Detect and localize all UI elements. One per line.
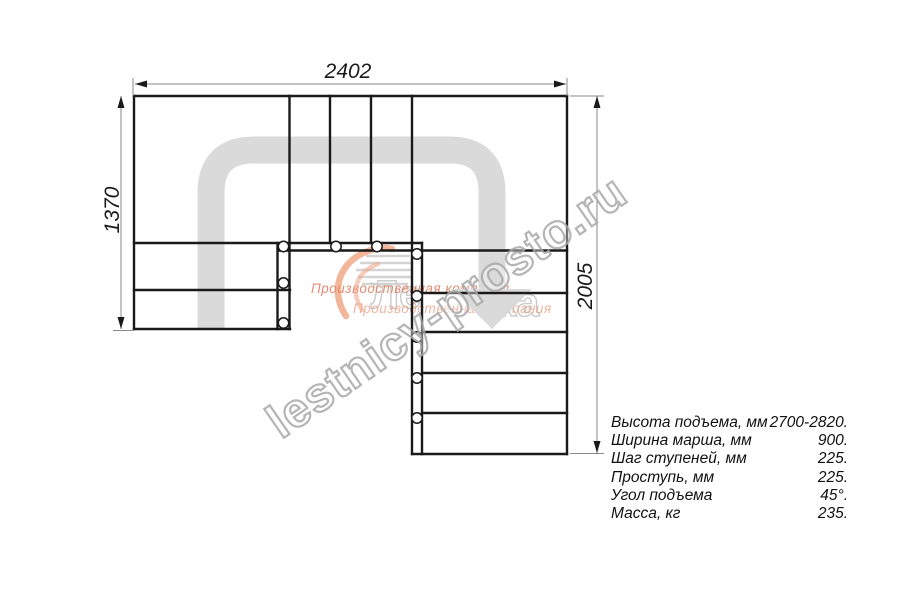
spec-label: Угол подъема	[611, 487, 712, 505]
spec-table: Высота подъема, мм 2700-2820. Ширина мар…	[611, 414, 848, 523]
spec-value: 225.	[818, 469, 848, 487]
spec-row: Масса, кг 235.	[611, 505, 848, 523]
spec-row: Проступь, мм 225.	[611, 469, 848, 487]
spec-value: 2700-2820.	[770, 414, 848, 432]
spec-label: Шаг ступеней, мм	[611, 450, 747, 468]
spec-value: 45°.	[820, 487, 848, 505]
spec-row: Шаг ступеней, мм 225.	[611, 450, 848, 468]
baluster-posts	[278, 241, 422, 423]
spec-value: 235.	[818, 505, 848, 523]
stair-drawing-page: Ле ка Производственная компания Производ…	[0, 0, 900, 600]
travel-arrow-head	[452, 289, 532, 329]
dimension-top-width-value: 2402	[324, 60, 372, 83]
spec-label: Масса, кг	[611, 505, 680, 523]
spec-value: 900.	[818, 432, 848, 450]
spec-label: Ширина марша, мм	[611, 432, 752, 450]
spec-label: Проступь, мм	[611, 469, 714, 487]
dimension-left-height: 1370	[101, 96, 133, 331]
spec-label: Высота подъема, мм	[611, 414, 768, 432]
dimension-right-height: 2005	[570, 96, 604, 454]
spec-value: 225.	[818, 450, 848, 468]
dimension-left-height-value: 1370	[101, 186, 124, 233]
spec-row: Ширина марша, мм 900.	[611, 432, 848, 450]
company-logo-flame-icon	[338, 248, 413, 316]
spec-row: Высота подъема, мм 2700-2820.	[611, 414, 848, 432]
dimension-right-height-value: 2005	[574, 262, 597, 310]
spec-row: Угол подъема 45°.	[611, 487, 848, 505]
dimension-top-width: 2402	[133, 60, 567, 96]
